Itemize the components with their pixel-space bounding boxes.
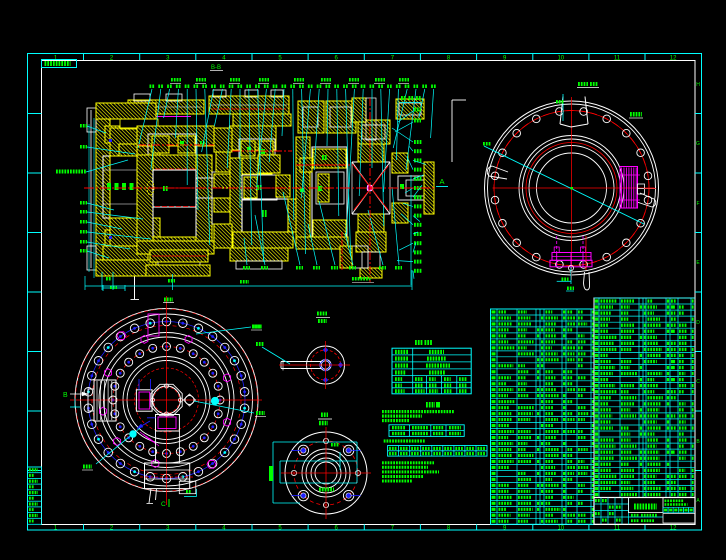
svg-text:11: 11 — [614, 525, 621, 531]
svg-text:B-B: B-B — [211, 65, 221, 71]
svg-text:F: F — [696, 201, 699, 207]
svg-text:10: 10 — [557, 525, 564, 531]
svg-text:A: A — [439, 177, 444, 186]
svg-text:10: 10 — [557, 55, 564, 61]
svg-text:H: H — [696, 82, 700, 88]
svg-text:D: D — [696, 320, 700, 326]
svg-text:11: 11 — [614, 55, 621, 61]
svg-text:C: C — [161, 501, 166, 508]
svg-text:G: G — [696, 141, 700, 147]
svg-text:12: 12 — [670, 525, 677, 531]
svg-text:12: 12 — [670, 55, 677, 61]
svg-text:B: B — [63, 392, 68, 399]
svg-text:C: C — [696, 379, 700, 385]
